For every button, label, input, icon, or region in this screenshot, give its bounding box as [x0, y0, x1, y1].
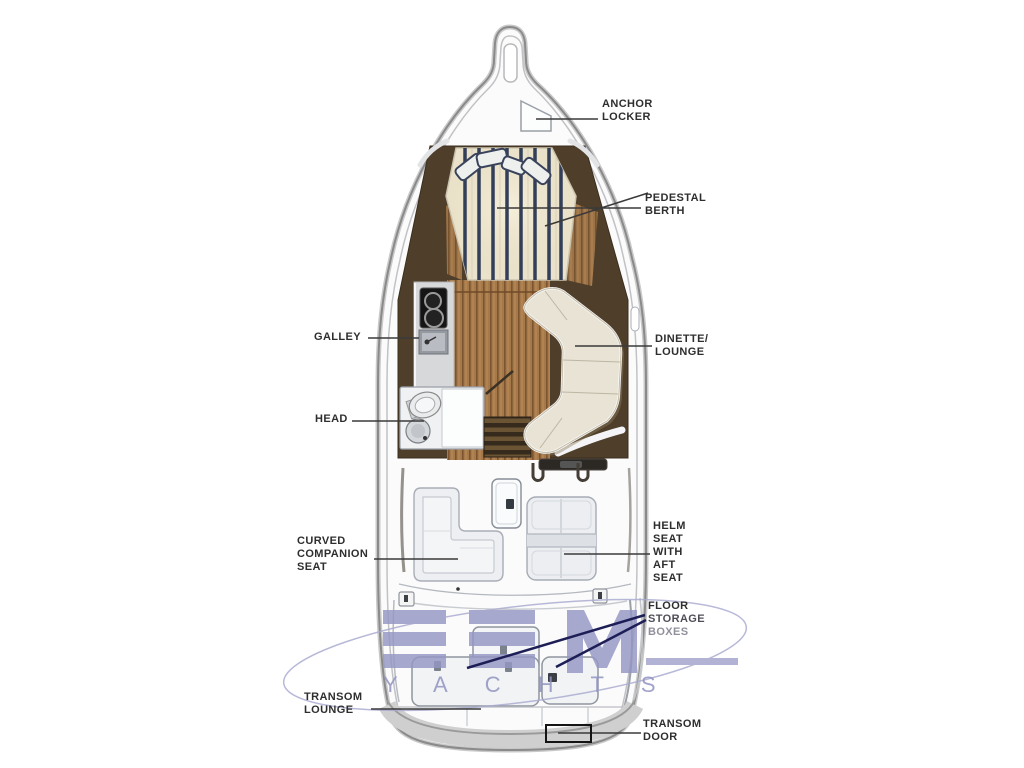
label-galley: GALLEY [314, 331, 361, 344]
head-sink [406, 419, 430, 443]
label-floor-storage-boxes: FLOOR STORAGE BOXES [648, 600, 705, 639]
label-curved-companion-seat: CURVED COMPANION SEAT [297, 535, 368, 574]
label-head: HEAD [315, 413, 348, 426]
bow-pulpit [504, 44, 517, 82]
boat-deck-plan: YACHTS ANCHOR LOCKER PEDESTAL BERTH GALL… [0, 0, 1024, 768]
side-rail-fitting [631, 307, 639, 331]
companionway-door [492, 479, 521, 528]
head-shower [442, 389, 483, 447]
helm-seat [527, 497, 596, 580]
label-transom-door: TRANSOM DOOR [643, 718, 701, 744]
label-pedestal-berth: PEDESTAL BERTH [645, 192, 706, 218]
head-compartment [400, 387, 484, 449]
pedestal-berth [446, 140, 576, 290]
deck-plan-drawing [0, 0, 1024, 768]
watermark-yachts-text: YACHTS [383, 672, 683, 698]
label-anchor-locker: ANCHOR LOCKER [602, 98, 653, 124]
label-transom-lounge: TRANSOM LOUNGE [304, 691, 362, 717]
label-dinette-lounge: DINETTE/ LOUNGE [655, 333, 708, 359]
label-helm-seat: HELM SEAT WITH AFT SEAT [653, 520, 686, 585]
galley [414, 282, 454, 392]
